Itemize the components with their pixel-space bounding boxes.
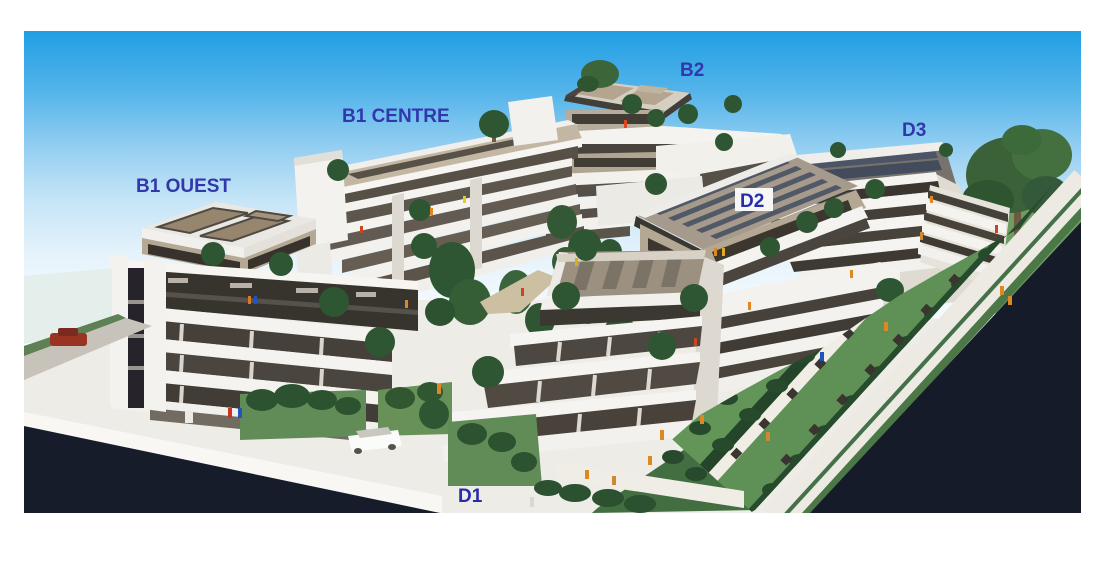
svg-text:D3: D3 bbox=[902, 120, 926, 141]
svg-text:B1 CENTRE: B1 CENTRE bbox=[342, 106, 450, 127]
svg-text:D2: D2 bbox=[740, 191, 764, 212]
svg-text:B1 OUEST: B1 OUEST bbox=[136, 176, 231, 197]
svg-text:D1: D1 bbox=[458, 486, 483, 507]
svg-text:B2: B2 bbox=[680, 60, 704, 81]
